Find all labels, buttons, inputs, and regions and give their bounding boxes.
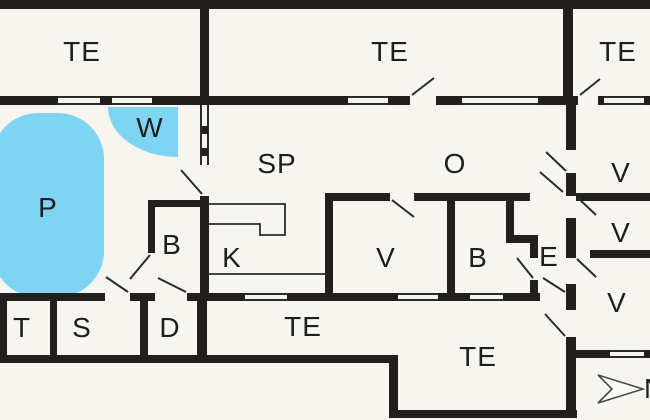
room-label-v-right-3: V — [607, 289, 627, 317]
wall-segment — [100, 96, 112, 105]
door-swing — [412, 78, 434, 95]
wall-segment — [0, 301, 7, 355]
wall-segment — [325, 193, 390, 201]
window-mullion — [202, 148, 208, 156]
wall-segment — [566, 173, 576, 196]
wall-segment — [566, 218, 576, 250]
wall-segment — [389, 355, 398, 417]
wall-segment — [197, 293, 207, 362]
window — [604, 96, 644, 105]
room-label-s: S — [72, 314, 92, 342]
wall-segment — [644, 96, 650, 105]
window — [58, 96, 100, 105]
wall-segment — [0, 293, 105, 301]
window — [200, 105, 209, 165]
door-swing — [517, 258, 533, 278]
window — [398, 293, 438, 301]
room-label-sp: SP — [257, 150, 296, 178]
wall-segment — [325, 193, 333, 301]
wall-segment — [566, 337, 576, 410]
door-swing — [181, 170, 202, 194]
wall-segment — [50, 301, 57, 355]
wall-segment — [506, 193, 514, 243]
door-swing — [392, 200, 414, 217]
room-label-te-top-center: TE — [371, 38, 409, 66]
wall-segment — [0, 0, 650, 9]
door-swing — [580, 79, 600, 95]
window-mullion — [202, 126, 208, 134]
north-arrow-icon — [598, 375, 643, 403]
door-swing — [106, 277, 128, 292]
wall-segment — [644, 350, 650, 358]
wall-segment — [503, 293, 540, 301]
compass-north-label: N — [644, 375, 650, 403]
wall-segment — [576, 350, 610, 358]
wall-segment — [140, 301, 148, 355]
room-label-b-pool: B — [162, 231, 182, 259]
wall-segment — [530, 235, 538, 258]
room-label-t: T — [13, 314, 31, 342]
wall-segment — [436, 96, 462, 105]
window — [470, 293, 503, 301]
room-label-k: K — [222, 244, 242, 272]
wall-segment — [447, 193, 455, 301]
wall-segment — [148, 200, 155, 253]
window — [348, 96, 388, 105]
room-label-te-top-left: TE — [63, 38, 101, 66]
room-label-v-right-2: V — [611, 219, 631, 247]
door-swing — [540, 172, 563, 192]
wall-segment — [152, 96, 348, 105]
wall-segment — [563, 0, 573, 96]
wall-segment — [389, 410, 577, 418]
window — [245, 293, 287, 301]
window — [610, 350, 644, 358]
room-label-te-top-right: TE — [599, 38, 637, 66]
room-label-te-middle: TE — [284, 313, 322, 341]
kitchen-counter-outline — [209, 204, 285, 235]
room-label-b-middle: B — [468, 244, 488, 272]
room-label-v-right-1: V — [611, 159, 631, 187]
wall-segment — [566, 250, 576, 258]
room-label-d: D — [159, 314, 180, 342]
room-label-v-middle: V — [376, 244, 396, 272]
wall-segment — [530, 280, 538, 293]
wall-segment — [566, 284, 576, 310]
wall-segment — [0, 96, 58, 105]
door-swing — [158, 278, 186, 292]
floor-plan: TE TE TE W P SP O V V V B K V B E T S D … — [0, 0, 650, 420]
window — [112, 96, 152, 105]
room-label-o: O — [444, 150, 467, 178]
wall-segment — [200, 0, 209, 96]
door-swing — [546, 152, 566, 171]
wall-segment — [576, 193, 650, 201]
room-label-w: W — [136, 114, 163, 142]
wall-segment — [187, 293, 245, 301]
door-swing — [543, 278, 565, 292]
wall-segment — [590, 250, 650, 258]
door-swing — [577, 259, 596, 277]
door-swing — [130, 255, 150, 279]
room-label-e: E — [539, 243, 559, 271]
wall-segment — [200, 196, 209, 301]
wall-segment — [287, 293, 398, 301]
door-swing — [545, 314, 565, 336]
wall-segment — [388, 96, 410, 105]
window — [462, 96, 538, 105]
room-label-p: P — [38, 194, 58, 222]
wall-segment — [566, 96, 576, 150]
wall-segment — [130, 293, 155, 301]
room-label-te-bottom: TE — [459, 343, 497, 371]
